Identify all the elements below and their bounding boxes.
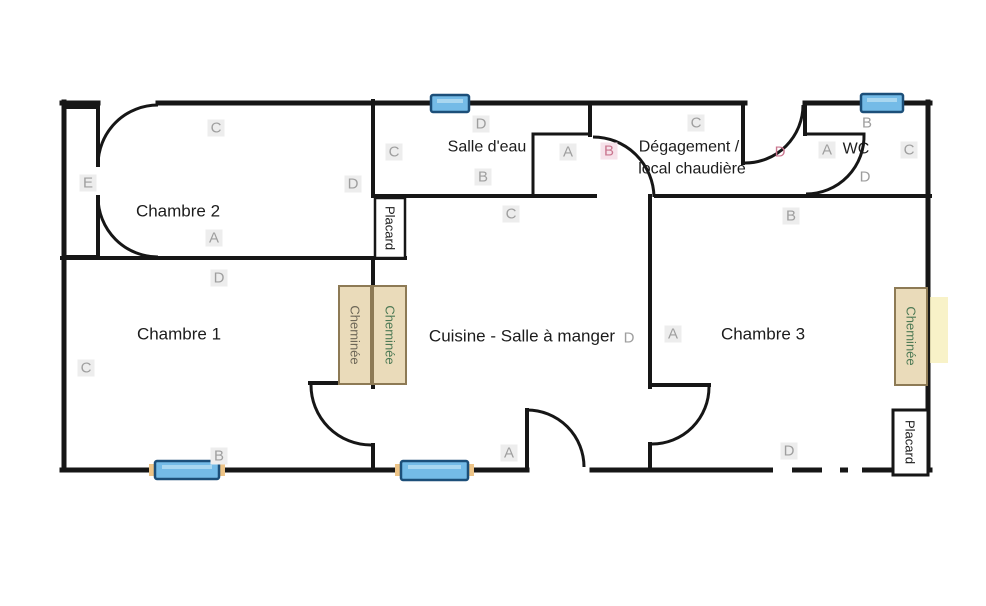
svg-text:D: D bbox=[214, 270, 225, 287]
marker-degagement-left: B bbox=[601, 143, 618, 160]
marker-chambre2-right: D bbox=[345, 176, 362, 193]
window-salle-eau bbox=[431, 95, 469, 112]
room-labels: Chambre 2 Chambre 1 Chambre 3 Cuisine - … bbox=[136, 139, 869, 346]
marker-cuisine-right: D bbox=[624, 330, 635, 347]
svg-text:D: D bbox=[860, 169, 871, 186]
wall-gap-artifact bbox=[848, 466, 862, 474]
svg-text:C: C bbox=[389, 144, 400, 161]
chimney-chambre3: Cheminée bbox=[895, 288, 927, 385]
marker-degagement-right: D bbox=[775, 144, 786, 161]
marker-chambre3-bottom: D bbox=[781, 443, 798, 460]
placard-bottom: Placard bbox=[893, 410, 928, 475]
svg-text:C: C bbox=[904, 142, 915, 159]
marker-chambre1-left: C bbox=[78, 360, 95, 377]
exterior-walls bbox=[62, 102, 930, 470]
marker-chambre3-left: A bbox=[665, 326, 682, 343]
watermark-smudge bbox=[930, 297, 948, 363]
svg-text:D: D bbox=[476, 116, 487, 133]
chimney-cuisine: Cheminée bbox=[373, 286, 406, 384]
room-label-chambre2: Chambre 2 bbox=[136, 202, 220, 221]
marker-cuisine-bottom: A bbox=[501, 445, 518, 462]
room-label-salle-eau: Salle d'eau bbox=[448, 139, 527, 156]
svg-text:D: D bbox=[348, 176, 359, 193]
marker-salle-eau-bottom: B bbox=[475, 169, 492, 186]
svg-text:B: B bbox=[862, 115, 872, 132]
floor-plan-page: Cheminée Cheminée Cheminée Placard Placa… bbox=[0, 0, 986, 606]
marker-chambre1-top: D bbox=[211, 270, 228, 287]
wall-markers: C E D A D C B D C A bbox=[78, 115, 918, 465]
chimney-label: Cheminée bbox=[904, 306, 919, 365]
svg-text:D: D bbox=[624, 330, 635, 347]
room-label-cuisine: Cuisine - Salle à manger bbox=[429, 327, 615, 346]
chimney-label: Cheminée bbox=[348, 305, 363, 364]
svg-text:B: B bbox=[786, 208, 796, 225]
marker-chambre2-top: C bbox=[208, 120, 225, 137]
svg-text:A: A bbox=[209, 230, 219, 247]
marker-wc-right: C bbox=[901, 142, 918, 159]
marker-chambre2-left: E bbox=[80, 175, 97, 192]
wall-gap-artifact bbox=[773, 466, 792, 474]
svg-text:E: E bbox=[83, 175, 93, 192]
window-cuisine bbox=[395, 461, 474, 480]
svg-text:D: D bbox=[775, 144, 786, 161]
svg-text:A: A bbox=[504, 445, 514, 462]
marker-salle-eau-right: A bbox=[560, 144, 577, 161]
svg-text:B: B bbox=[214, 448, 224, 465]
marker-wc-bottom: D bbox=[860, 169, 871, 186]
marker-salle-eau-left: C bbox=[386, 144, 403, 161]
svg-text:A: A bbox=[822, 142, 832, 159]
room-label-degagement-1: Dégagement / bbox=[639, 139, 740, 156]
room-label-chambre3: Chambre 3 bbox=[721, 325, 805, 344]
marker-chambre1-bottom: B bbox=[211, 448, 228, 465]
svg-text:B: B bbox=[604, 143, 614, 160]
room-label-degagement-2: local chaudière bbox=[638, 161, 746, 178]
marker-chambre3-top: B bbox=[783, 208, 800, 225]
room-label-wc: WC bbox=[843, 141, 870, 158]
door-arc-chambre3 bbox=[652, 387, 709, 444]
marker-chambre2-bottom: A bbox=[206, 230, 223, 247]
svg-text:A: A bbox=[563, 144, 573, 161]
wall-gap-artifact bbox=[822, 466, 840, 474]
door-arc-chambre1 bbox=[311, 385, 371, 445]
svg-text:D: D bbox=[784, 443, 795, 460]
marker-wc-left: A bbox=[819, 142, 836, 159]
interior-walls bbox=[62, 101, 930, 470]
room-label-chambre1: Chambre 1 bbox=[137, 325, 221, 344]
marker-cuisine-top: C bbox=[503, 206, 520, 223]
svg-text:B: B bbox=[478, 169, 488, 186]
svg-text:A: A bbox=[668, 326, 678, 343]
placard-top: Placard bbox=[375, 198, 405, 258]
door-arc-chambre2-upper bbox=[98, 105, 158, 165]
placard-label: Placard bbox=[383, 206, 398, 250]
svg-text:C: C bbox=[691, 115, 702, 132]
floor-plan: Cheminée Cheminée Cheminée Placard Placa… bbox=[0, 0, 986, 606]
marker-salle-eau-top: D bbox=[473, 116, 490, 133]
chimney-chambre1: Cheminée bbox=[339, 286, 371, 384]
chimney-label: Cheminée bbox=[383, 305, 398, 364]
svg-text:C: C bbox=[506, 206, 517, 223]
placard-label: Placard bbox=[903, 420, 918, 464]
marker-wc-top: B bbox=[862, 115, 872, 132]
marker-degagement-top: C bbox=[688, 115, 705, 132]
window-wc bbox=[861, 94, 903, 112]
svg-text:C: C bbox=[81, 360, 92, 377]
door-arc-entrance-south bbox=[527, 410, 584, 467]
svg-text:C: C bbox=[211, 120, 222, 137]
